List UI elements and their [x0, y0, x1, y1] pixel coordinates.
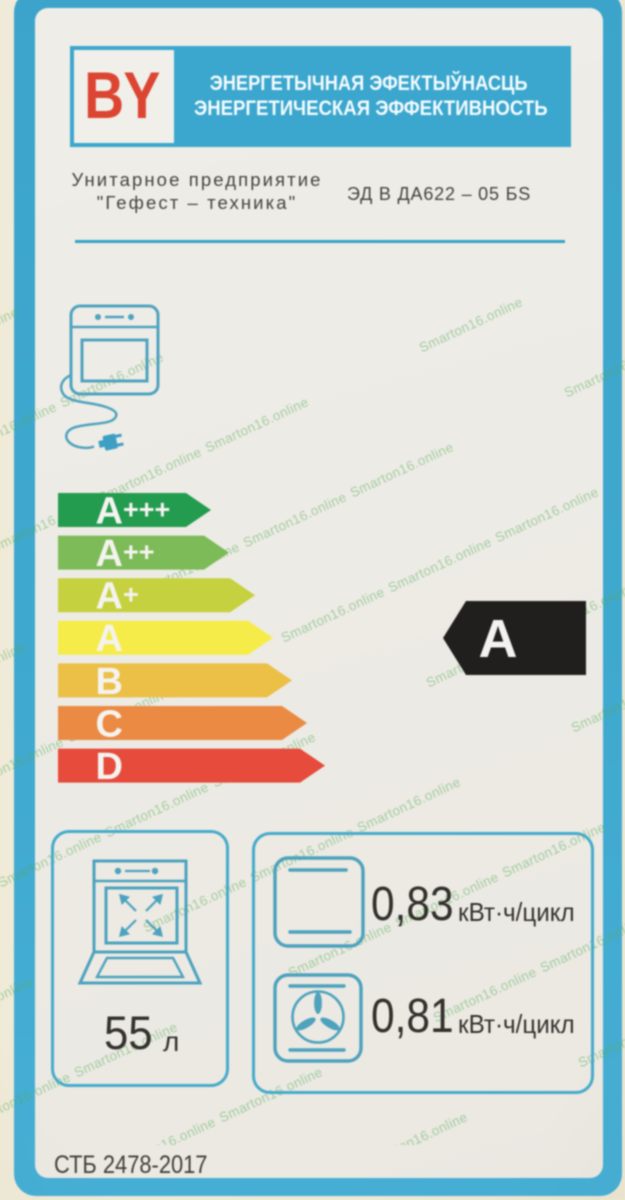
svg-text:A: A	[96, 618, 123, 660]
svg-text:C: C	[96, 703, 123, 745]
svg-text:B: B	[96, 661, 123, 703]
svg-text:D: D	[96, 746, 123, 788]
svg-text:A: A	[479, 609, 518, 669]
